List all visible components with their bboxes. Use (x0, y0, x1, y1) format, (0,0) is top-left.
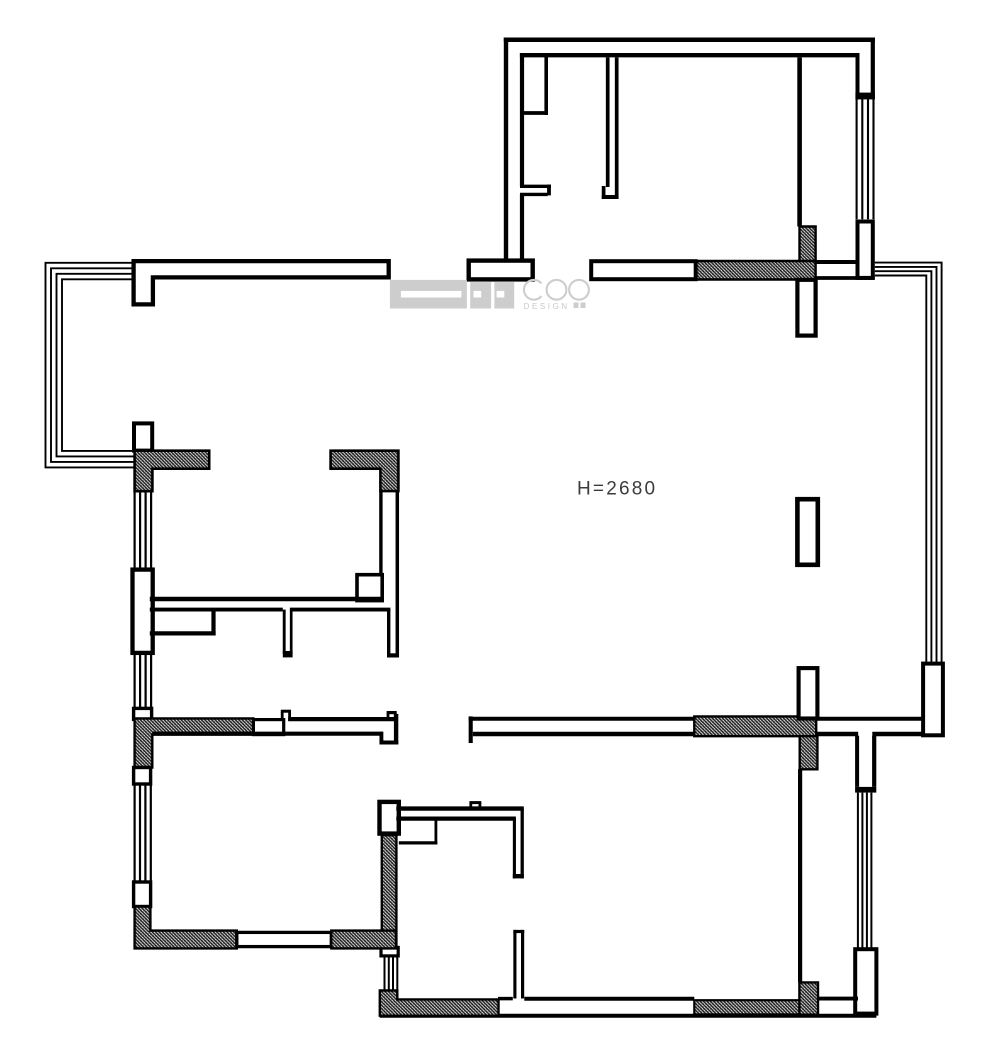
svg-text:DESIGN: DESIGN (524, 302, 570, 311)
svg-text:H=2680: H=2680 (577, 479, 657, 500)
